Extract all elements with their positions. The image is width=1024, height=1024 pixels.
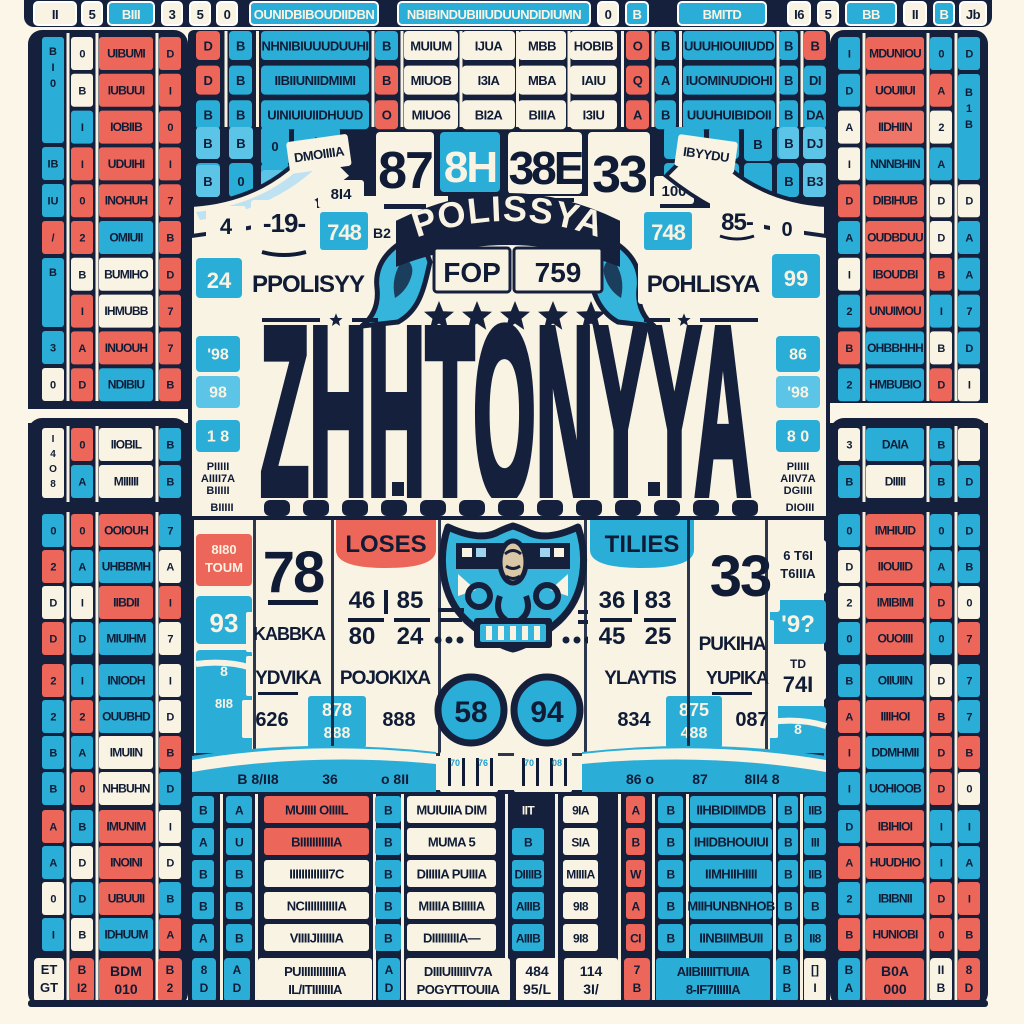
- svg-text:IDHUUM: IDHUUM: [104, 928, 148, 942]
- svg-text:IIB: IIB: [808, 868, 822, 882]
- svg-text:B: B: [235, 868, 244, 882]
- svg-text:B2: B2: [373, 225, 391, 241]
- svg-text:87: 87: [692, 771, 708, 787]
- svg-text:IMIBIMI: IMIBIMI: [877, 596, 914, 610]
- svg-text:D: D: [937, 196, 945, 208]
- svg-text:B: B: [811, 900, 820, 914]
- svg-text:99: 99: [784, 266, 808, 291]
- svg-text:IB: IB: [48, 159, 59, 171]
- svg-text:[]: []: [811, 963, 819, 977]
- svg-text:85: 85: [397, 587, 424, 614]
- svg-text:2: 2: [846, 894, 852, 906]
- svg-text:D: D: [166, 712, 174, 724]
- svg-text:B: B: [384, 836, 393, 850]
- svg-text:36: 36: [599, 587, 626, 614]
- svg-text:A: A: [166, 562, 174, 574]
- svg-text:B: B: [204, 108, 213, 123]
- svg-text:B: B: [784, 932, 793, 946]
- svg-text:DIIIII: DIIIII: [885, 475, 906, 489]
- svg-text:2: 2: [938, 122, 944, 134]
- svg-text:MUIIII OIIIIL: MUIIII OIIIIL: [285, 803, 349, 818]
- svg-text:II: II: [912, 7, 918, 22]
- svg-text:IU: IU: [48, 196, 59, 208]
- svg-text:A: A: [937, 159, 945, 171]
- svg-text:AIIIB: AIIIB: [516, 900, 541, 914]
- svg-text:AIIBIIIIITIUIIA: AIIBIIIIITIUIIA: [677, 964, 751, 979]
- svg-text:/: /: [51, 233, 54, 245]
- svg-text:IIOUIID: IIOUIID: [878, 560, 914, 574]
- svg-text:8I80: 8I80: [211, 542, 236, 557]
- svg-text:B: B: [845, 676, 853, 688]
- svg-text:D: D: [845, 822, 853, 834]
- svg-text:8: 8: [201, 963, 208, 977]
- svg-text:BIIIIIIIIIIIA: BIIIIIIIIIIIA: [291, 835, 343, 850]
- svg-text:748: 748: [327, 220, 361, 245]
- svg-text:B: B: [784, 900, 793, 914]
- svg-text:D: D: [166, 784, 174, 796]
- svg-text:0: 0: [50, 380, 56, 392]
- svg-text:'98: '98: [787, 385, 809, 402]
- svg-text:O: O: [49, 464, 57, 475]
- svg-text:DIOIII: DIOIII: [786, 502, 815, 514]
- svg-text:B: B: [965, 87, 973, 99]
- svg-text:B: B: [937, 440, 945, 452]
- svg-text:B: B: [784, 108, 793, 123]
- svg-text:7: 7: [167, 343, 173, 355]
- svg-text:74I: 74I: [783, 672, 814, 697]
- svg-text:I2: I2: [77, 981, 87, 995]
- svg-text:70: 70: [524, 758, 534, 768]
- svg-text:BDM: BDM: [110, 963, 142, 979]
- svg-text:A: A: [631, 900, 640, 914]
- svg-text:B: B: [753, 137, 762, 152]
- svg-text:0: 0: [938, 634, 944, 646]
- svg-text:B: B: [845, 930, 853, 942]
- svg-text:B: B: [199, 868, 208, 882]
- svg-text:VIIIIJIIIIIIA: VIIIIJIIIIIIA: [290, 931, 345, 946]
- svg-text:D: D: [937, 233, 945, 245]
- svg-text:0: 0: [224, 7, 231, 22]
- svg-text:BIII: BIII: [122, 7, 140, 22]
- svg-text:BIIIII: BIIIII: [210, 502, 233, 514]
- svg-text:MIUIHM: MIUIHM: [106, 632, 146, 646]
- svg-text:INOHUH: INOHUH: [105, 194, 148, 208]
- svg-text:B: B: [78, 822, 86, 834]
- svg-text:0: 0: [79, 49, 85, 61]
- svg-text:NHBUHN: NHBUHN: [102, 782, 149, 796]
- svg-text:A: A: [845, 712, 853, 724]
- svg-text:A: A: [78, 748, 86, 760]
- svg-text:IHIDBHOUIUI: IHIDBHOUIUI: [694, 835, 768, 850]
- svg-text:A: A: [385, 963, 394, 977]
- svg-text:A: A: [78, 477, 86, 489]
- svg-text:7: 7: [167, 634, 173, 646]
- svg-text:2: 2: [50, 712, 56, 724]
- svg-text:D: D: [965, 477, 973, 489]
- svg-text:D: D: [965, 981, 974, 995]
- svg-text:MUIUIIA DIM: MUIUIIA DIM: [416, 803, 486, 818]
- svg-text:II: II: [938, 963, 945, 977]
- svg-text:93: 93: [210, 608, 239, 638]
- svg-text:B: B: [845, 477, 853, 489]
- svg-text:DDMHMII: DDMHMII: [871, 746, 919, 760]
- svg-text:ET: ET: [41, 962, 58, 977]
- svg-text:7: 7: [167, 306, 173, 318]
- svg-text:AIIII7A: AIIII7A: [201, 473, 235, 485]
- svg-text:B: B: [784, 136, 793, 151]
- svg-text:58: 58: [454, 696, 487, 729]
- svg-text:'98: '98: [207, 347, 229, 364]
- svg-text:TILIES: TILIES: [605, 531, 680, 558]
- svg-text:1: 1: [966, 103, 972, 115]
- svg-text:D: D: [204, 73, 213, 88]
- svg-text:D: D: [49, 634, 57, 646]
- svg-text:000: 000: [883, 981, 907, 997]
- svg-text:IBOUDBI: IBOUDBI: [872, 267, 918, 281]
- svg-text:DGIIII: DGIIII: [784, 485, 813, 497]
- svg-text:NHNIBIUUUDUUHI: NHNIBIUUUDUUHI: [261, 39, 368, 54]
- svg-text:I: I: [51, 62, 54, 74]
- svg-text:B: B: [166, 963, 175, 977]
- svg-text:OUUBHD: OUUBHD: [102, 710, 151, 724]
- svg-text:6 T6I: 6 T6I: [783, 548, 813, 563]
- svg-text:INOINI: INOINI: [110, 856, 142, 870]
- svg-text:IMUIIN: IMUIIN: [110, 746, 143, 760]
- svg-text:D: D: [965, 526, 973, 538]
- svg-text:OUDBDUU: OUDBDUU: [867, 231, 923, 245]
- svg-text:BB: BB: [862, 7, 880, 22]
- svg-text:08: 08: [552, 758, 562, 768]
- svg-text:5: 5: [825, 7, 832, 22]
- svg-text:B: B: [199, 804, 208, 818]
- svg-text:B: B: [666, 868, 675, 882]
- svg-text:2: 2: [50, 562, 56, 574]
- svg-text:B: B: [384, 804, 393, 818]
- svg-text:D: D: [78, 894, 86, 906]
- svg-text:8I4: 8I4: [331, 186, 353, 203]
- svg-text:B: B: [236, 136, 245, 151]
- svg-text:4: 4: [50, 449, 56, 460]
- svg-text:85-: 85-: [721, 209, 754, 236]
- svg-text:NBIBINDUBIIIUDUUNDIDIUMN: NBIBINDUBIIIUDUUNDIDIUMN: [407, 7, 581, 22]
- svg-text:B: B: [965, 930, 973, 942]
- svg-text:B: B: [235, 900, 244, 914]
- svg-text:B: B: [937, 269, 945, 281]
- svg-text:7: 7: [634, 963, 641, 977]
- svg-text:A: A: [633, 108, 643, 123]
- svg-text:0: 0: [50, 526, 56, 538]
- svg-text:A: A: [631, 804, 640, 818]
- svg-text:IUBUUI: IUBUUI: [108, 83, 145, 97]
- svg-text:D: D: [78, 380, 86, 392]
- svg-text:HUUDHIO: HUUDHIO: [870, 856, 921, 870]
- svg-text:0: 0: [781, 219, 792, 241]
- svg-text:III: III: [811, 836, 819, 850]
- svg-text:UOHIOOB: UOHIOOB: [869, 782, 922, 796]
- svg-text:IIIIHOI: IIIIHOI: [880, 710, 910, 724]
- svg-text:A: A: [235, 804, 244, 818]
- svg-text:B: B: [784, 804, 793, 818]
- svg-text:2: 2: [846, 598, 852, 610]
- svg-text:IIMHIIHIIII: IIMHIIHIIII: [705, 867, 757, 882]
- svg-text:A: A: [845, 858, 853, 870]
- svg-text:B: B: [166, 380, 174, 392]
- svg-text:A: A: [49, 858, 57, 870]
- svg-text:D: D: [78, 858, 86, 870]
- svg-text:I3IA: I3IA: [478, 73, 501, 88]
- svg-text:B: B: [965, 562, 973, 574]
- svg-text:9I8: 9I8: [573, 932, 589, 946]
- svg-text:IMHIUID: IMHIUID: [875, 524, 917, 538]
- svg-text:B: B: [382, 39, 391, 54]
- svg-text:IINBIIMBUII: IINBIIMBUII: [699, 931, 762, 946]
- svg-text:HMBUBIO: HMBUBIO: [869, 378, 921, 392]
- svg-text:B: B: [384, 932, 393, 946]
- svg-text:484: 484: [525, 963, 549, 979]
- svg-text:UINIUIUIIDHUUD: UINIUIUIIDHUUD: [267, 108, 363, 123]
- svg-text:B: B: [937, 477, 945, 489]
- svg-text:B: B: [199, 900, 208, 914]
- svg-text:D: D: [845, 196, 853, 208]
- svg-text:0: 0: [966, 784, 972, 796]
- svg-text:A: A: [937, 85, 945, 97]
- svg-text:D: D: [937, 748, 945, 760]
- svg-text:114: 114: [580, 963, 603, 979]
- svg-text:SIA: SIA: [571, 836, 590, 850]
- svg-text:087: 087: [735, 709, 768, 731]
- svg-text:D: D: [845, 85, 853, 97]
- svg-text:POJOKIXA: POJOKIXA: [340, 668, 431, 689]
- svg-text:B: B: [937, 712, 945, 724]
- svg-text:0: 0: [271, 139, 278, 154]
- svg-text:D: D: [166, 49, 174, 61]
- svg-text:DI: DI: [809, 73, 821, 88]
- svg-text:IHMUBB: IHMUBB: [104, 304, 148, 318]
- svg-text:A: A: [965, 858, 973, 870]
- svg-text:B: B: [784, 73, 793, 88]
- svg-text:8II4 8: 8II4 8: [744, 771, 779, 787]
- svg-text:24: 24: [397, 623, 424, 650]
- svg-text:D: D: [965, 343, 973, 355]
- svg-text:DAIA: DAIA: [882, 438, 909, 452]
- svg-text:B 8/II8: B 8/II8: [237, 771, 278, 787]
- svg-text:IBIBNII: IBIBNII: [878, 892, 912, 906]
- svg-text:B: B: [78, 269, 86, 281]
- svg-text:8: 8: [966, 963, 973, 977]
- svg-text:O: O: [633, 39, 643, 54]
- svg-text:o 8II: o 8II: [381, 771, 409, 787]
- svg-text:B: B: [49, 784, 57, 796]
- svg-text:IAIU: IAIU: [582, 73, 606, 88]
- svg-text:0: 0: [846, 634, 852, 646]
- svg-text:45: 45: [599, 623, 626, 650]
- svg-text:PIIIII: PIIIII: [787, 461, 810, 473]
- svg-text:95/L: 95/L: [523, 981, 551, 997]
- svg-text:MIIIIA BIIIIIA: MIIIIA BIIIIIA: [418, 899, 485, 914]
- svg-text:OMIUII: OMIUII: [109, 231, 143, 245]
- svg-text:B: B: [49, 748, 57, 760]
- svg-text:2: 2: [846, 306, 852, 318]
- svg-text:-19-: -19-: [263, 208, 306, 238]
- svg-text:2: 2: [50, 676, 56, 688]
- svg-text:70: 70: [450, 758, 460, 768]
- svg-text:87: 87: [378, 142, 432, 200]
- svg-text:U: U: [235, 836, 243, 850]
- svg-text:8: 8: [50, 479, 56, 490]
- svg-text:DA: DA: [806, 108, 825, 123]
- svg-text:MDUNIOU: MDUNIOU: [869, 47, 921, 61]
- svg-text:IUOMINUDIOHI: IUOMINUDIOHI: [686, 73, 772, 88]
- svg-text:98: 98: [209, 385, 227, 402]
- svg-text:D: D: [937, 676, 945, 688]
- svg-text:B: B: [965, 119, 973, 131]
- svg-text:A: A: [661, 73, 671, 88]
- svg-text:8H: 8H: [444, 143, 496, 192]
- svg-text:D: D: [385, 981, 394, 995]
- svg-text:76: 76: [478, 758, 488, 768]
- svg-text:A: A: [199, 836, 208, 850]
- svg-text:UNUIMOU: UNUIMOU: [869, 304, 921, 318]
- svg-text:PUKIHA: PUKIHA: [699, 634, 767, 655]
- svg-text:834: 834: [617, 709, 651, 731]
- svg-text:DIIIUIIIIIIV7A: DIIIUIIIIIIV7A: [424, 964, 493, 979]
- svg-text:0: 0: [50, 78, 56, 90]
- svg-text:B: B: [235, 932, 244, 946]
- svg-text:HUNIOBI: HUNIOBI: [872, 928, 918, 942]
- svg-text:NDIBIU: NDIBIU: [108, 378, 145, 392]
- svg-text:AIIIB: AIIIB: [516, 932, 541, 946]
- svg-text:IL/ITIIIIIIIA: IL/ITIIIIIIIA: [288, 982, 343, 997]
- svg-text:3: 3: [846, 440, 852, 452]
- svg-text:0: 0: [938, 930, 944, 942]
- svg-text:B: B: [166, 477, 174, 489]
- svg-text:25: 25: [645, 623, 672, 650]
- svg-text:GT: GT: [40, 980, 58, 995]
- svg-text:B0A: B0A: [881, 963, 909, 979]
- svg-text:I: I: [52, 434, 55, 445]
- svg-text:D: D: [937, 380, 945, 392]
- svg-text:33: 33: [592, 146, 647, 204]
- svg-text:I: I: [813, 981, 816, 995]
- svg-text:D: D: [166, 858, 174, 870]
- svg-text:7: 7: [966, 634, 972, 646]
- svg-text:IIBDII: IIBDII: [113, 596, 139, 610]
- svg-text:A: A: [233, 963, 242, 977]
- svg-text:8I8: 8I8: [215, 696, 233, 711]
- svg-text:878: 878: [322, 700, 352, 720]
- svg-text:BI2A: BI2A: [475, 108, 504, 123]
- svg-text:B: B: [49, 267, 57, 279]
- svg-text:T6IIIA: T6IIIA: [780, 566, 816, 581]
- svg-text:MUIUM: MUIUM: [410, 39, 452, 54]
- svg-text:626: 626: [255, 709, 288, 731]
- svg-text:2: 2: [846, 380, 852, 392]
- svg-text:3: 3: [50, 343, 56, 355]
- svg-text:Q: Q: [633, 73, 643, 88]
- svg-text:POGYTTOUIIA: POGYTTOUIIA: [417, 982, 501, 997]
- svg-text:B: B: [784, 39, 793, 54]
- svg-text:INUOUH: INUOUH: [105, 341, 148, 355]
- svg-text:D: D: [200, 981, 209, 995]
- svg-text:UUUHUIBIDOII: UUUHUIBIDOII: [687, 108, 771, 123]
- svg-text:B: B: [203, 174, 212, 189]
- svg-text:YLAYTIS: YLAYTIS: [604, 668, 676, 689]
- svg-text:86 o: 86 o: [626, 771, 654, 787]
- svg-text:A: A: [78, 343, 86, 355]
- svg-text:B: B: [78, 963, 87, 977]
- svg-text:875: 875: [679, 700, 709, 720]
- svg-text:TOUM: TOUM: [205, 560, 243, 575]
- svg-text:UHBBMH: UHBBMH: [102, 560, 151, 574]
- svg-text:LOSES: LOSES: [345, 531, 426, 558]
- svg-text:BUMIHO: BUMIHO: [104, 267, 148, 281]
- svg-text:MBB: MBB: [528, 39, 556, 54]
- svg-text:B: B: [811, 39, 820, 54]
- svg-text:7: 7: [167, 196, 173, 208]
- svg-text:D: D: [937, 598, 945, 610]
- svg-text:PUIIIIIIIIIIIIA: PUIIIIIIIIIIIIA: [284, 964, 347, 979]
- svg-text:8-IF7IIIIIIA: 8-IF7IIIIIIA: [686, 982, 741, 997]
- svg-text:7: 7: [966, 712, 972, 724]
- svg-text:B: B: [524, 836, 533, 850]
- svg-text:B: B: [784, 174, 793, 189]
- svg-text:B: B: [382, 73, 391, 88]
- svg-text:B: B: [203, 136, 212, 151]
- svg-text:B: B: [666, 804, 675, 818]
- svg-text:CI: CI: [630, 932, 641, 946]
- svg-text:IIOBIL: IIOBIL: [111, 438, 142, 452]
- svg-text:D: D: [937, 784, 945, 796]
- svg-text:0: 0: [79, 196, 85, 208]
- svg-text:3I/: 3I/: [583, 981, 599, 997]
- svg-text:DIIIIB: DIIIIB: [514, 868, 542, 882]
- svg-text:IIT: IIT: [522, 804, 535, 818]
- svg-text:OUNIDBIBOUDIIDBN: OUNIDBIBOUDIIDBN: [254, 7, 375, 22]
- svg-text:B: B: [49, 46, 57, 58]
- svg-text:888: 888: [324, 725, 351, 742]
- svg-text:YUPIKA: YUPIKA: [706, 668, 769, 688]
- svg-text:7: 7: [167, 526, 173, 538]
- svg-text:9IA: 9IA: [572, 804, 590, 818]
- svg-text:A: A: [965, 233, 973, 245]
- svg-text:A: A: [78, 562, 86, 574]
- svg-text:MIIHUNBNHOB: MIIHUNBNHOB: [687, 899, 774, 914]
- svg-text:B: B: [845, 963, 854, 977]
- svg-text:9I8: 9I8: [573, 900, 589, 914]
- svg-text:B: B: [845, 343, 853, 355]
- svg-text:UBUUII: UBUUII: [108, 892, 145, 906]
- svg-text:0: 0: [938, 526, 944, 538]
- svg-text:W: W: [630, 868, 642, 882]
- svg-text:AIIV7A: AIIV7A: [780, 473, 816, 485]
- svg-text:5: 5: [89, 7, 96, 22]
- svg-text:5: 5: [197, 7, 204, 22]
- svg-text:488: 488: [681, 725, 708, 742]
- svg-text:B: B: [661, 108, 670, 123]
- svg-text:D: D: [937, 894, 945, 906]
- svg-text:PIIIII: PIIIII: [207, 461, 230, 473]
- svg-text:B: B: [384, 900, 393, 914]
- svg-text:II8: II8: [809, 932, 821, 946]
- svg-text:IOBIIB: IOBIIB: [110, 120, 143, 134]
- svg-text:B3: B3: [807, 174, 824, 189]
- svg-text:B: B: [666, 836, 675, 850]
- svg-text:OOIOUH: OOIOUH: [104, 524, 148, 538]
- svg-text:36: 36: [322, 771, 338, 787]
- svg-text:38E: 38E: [509, 142, 583, 194]
- svg-text:B: B: [236, 108, 245, 123]
- svg-text:0: 0: [966, 598, 972, 610]
